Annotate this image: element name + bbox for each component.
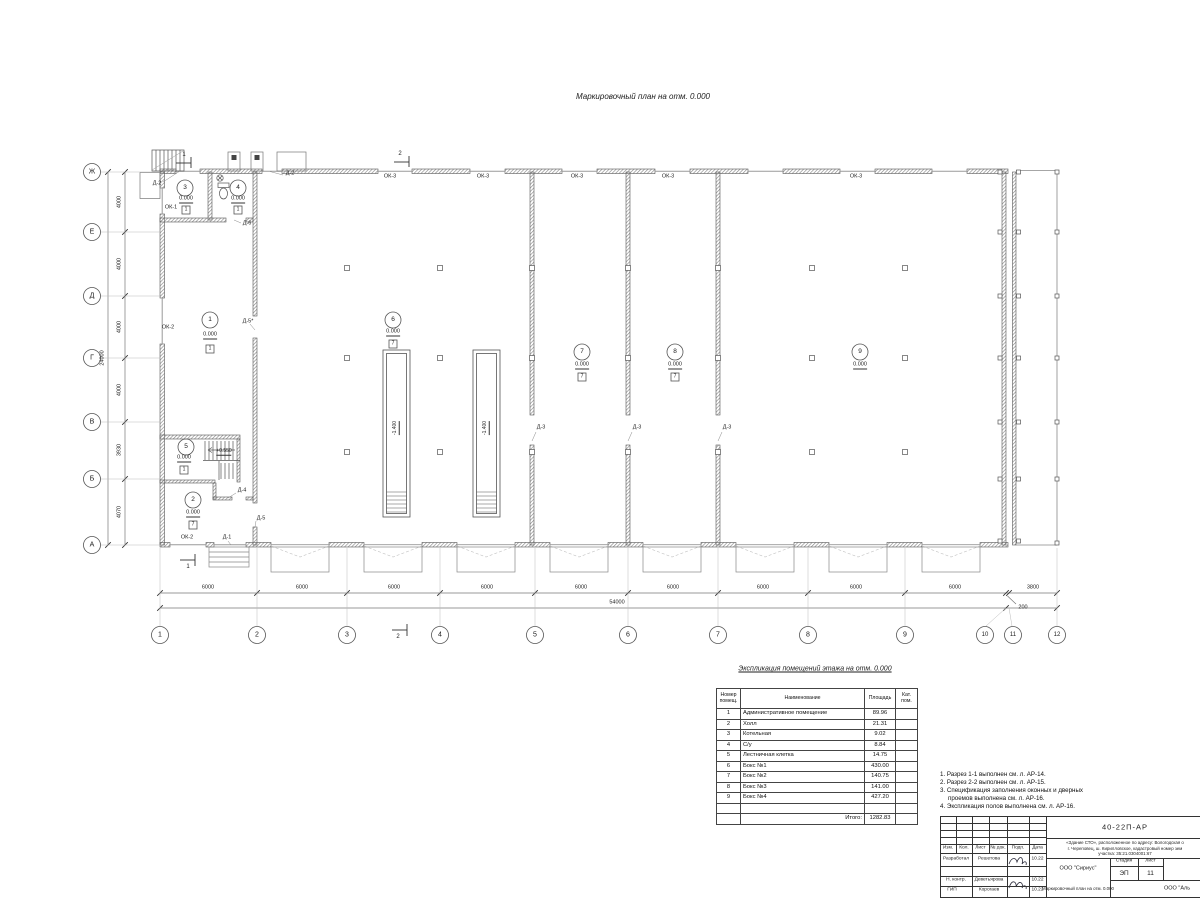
floor-type: 1 [185,208,188,213]
axis-col-label: 9 [903,632,907,639]
tb-org2: ООО "Аль [1164,886,1190,892]
door-label-d6: Д-6 [243,221,252,227]
section-marks [176,156,409,636]
door-label-d5: Д-5 [257,516,266,522]
drawing-sheet: Маркировочный план на отм. 0.000 Ж Е Д Г… [0,0,1200,900]
cell-area: 140.75 [865,772,896,783]
note-line: проемов выполнена см. л. АР-16. [940,795,1180,803]
dim-v: 4000 [117,384,123,396]
gates [209,545,980,572]
room-number: 7 [580,349,584,356]
axis-col-label: 2 [255,632,259,639]
window-label-ok3: ОК-3 [384,174,396,180]
cell-num: 8 [717,782,741,793]
cell-area: 427.20 [865,793,896,804]
door-label-d2: Д-2 [153,181,162,187]
dim-bay: 6000 [850,585,862,591]
section-mark-label: 1 [186,564,189,570]
floor-type: 1 [209,347,212,352]
table-row: 8Бокс №3141.00 [717,782,918,793]
note-line: 1. Разрез 1-1 выполнен см. л. АР-14. [940,771,1180,779]
tb-sheet-label: Лист [1145,860,1155,865]
floor-type: 1 [183,468,186,473]
table-row-total: Итого:1282.83 [717,814,918,825]
tb-col-izm: Изм. [943,846,953,851]
cell-empty [896,803,918,814]
room-table: Номер помещ. Наименование Площадь Кат. п… [716,688,918,825]
cell-num: 2 [717,719,741,730]
canopy [1016,171,1057,546]
tb-date: 10.22 [1031,879,1043,884]
cell-area: 430.00 [865,761,896,772]
axis-col-label: 12 [1054,632,1061,638]
tb-name: Решетова [978,858,1000,863]
cell-num: 6 [717,761,741,772]
axis-row-label: Д [90,293,95,300]
dim-bay: 6000 [575,585,587,591]
dim-bay: 6000 [667,585,679,591]
room-elevation: 0.000 [853,363,867,370]
axis-row-label: В [90,419,95,426]
porches [140,152,306,199]
section-mark-label: 2 [398,151,401,157]
cell-name: Бокс №1 [741,761,865,772]
cell-name: Бокс №4 [741,793,865,804]
col-header-cat: Кат. пом. [896,689,918,709]
opening-lines [162,171,967,544]
tb-stage-value: ЭП [1119,870,1128,877]
window-label-ok1: ОК-1 [165,205,177,211]
cell-num: 5 [717,751,741,762]
dim-total-v: 24000 [100,350,106,365]
tb-col-ndok: № док. [990,846,1005,851]
cell-empty [741,803,865,814]
window-label-ok2: ОК-2 [181,535,193,541]
total-value: 1282.83 [865,814,896,825]
floor-type: 1 [237,208,240,213]
axis-col-label: 1 [158,632,162,639]
room-number: 2 [191,497,195,504]
axis-col-label: 7 [716,632,720,639]
axis-leaders [101,172,1058,626]
window-label-ok3: ОК-3 [662,174,674,180]
axis-col-label: 4 [438,632,442,639]
pit-elevation: -1.400 [483,421,490,435]
dim-bay: 6000 [949,585,961,591]
cell-cat [896,719,918,730]
tb-col-kol: Кол. [959,846,969,851]
tb-date: 10.22 [1031,858,1043,863]
room-number: 3 [183,185,187,192]
tb-org: ООО "Сириус" [1060,866,1097,872]
cell-cat [896,730,918,741]
table-row: 9Бокс №4427.20 [717,793,918,804]
signatures [1009,858,1026,889]
cell-name: С/у [741,740,865,751]
axis-bubbles [84,164,1066,644]
cell-name: Лестничная клетка [741,751,865,762]
tb-col-data: Дата [1032,846,1043,851]
axis-col-label: 5 [533,632,537,639]
cell-empty [717,814,741,825]
plan-title: Маркировочный план на отм. 0.000 [576,93,710,101]
columns [345,170,1060,545]
room-elevation: 0.000 [177,456,191,463]
axis-col-label: 10 [982,632,989,638]
axis-col-label: 3 [345,632,349,639]
cell-area: 21.31 [865,719,896,730]
dim-bay: 6000 [757,585,769,591]
dim-bay: 6000 [388,585,400,591]
room-number: 4 [236,185,240,192]
tb-doc-number: 40-22П-АР [1102,823,1148,831]
cell-name: Административное помещение [741,709,865,720]
room-number: 9 [858,349,862,356]
cell-area: 89.96 [865,709,896,720]
dim-v: 4000 [117,321,123,333]
note-line: 3. Спецификация заполнения оконных и две… [940,787,1180,795]
tb-stage-label: Стадия [1116,860,1132,865]
tb-name: Деветьярова [975,879,1004,884]
axis-col-label: 6 [626,632,630,639]
table-row: 3Котельная9.02 [717,730,918,741]
cell-name: Бокс №3 [741,782,865,793]
door-label-d4: Д-4 [238,488,247,494]
cell-num: 1 [717,709,741,720]
dim-total-h: 54000 [609,600,624,606]
notes-block: 1. Разрез 1-1 выполнен см. л. АР-14. 2. … [940,771,1180,811]
stair-elevation: +0.550 [216,449,231,456]
window-label-ok3: ОК-3 [477,174,489,180]
cell-cat [896,740,918,751]
cell-name: Бокс №2 [741,772,865,783]
cell-cat [896,761,918,772]
cell-cat [896,782,918,793]
table-row-empty [717,803,918,814]
cell-cat [896,772,918,783]
cell-cat [896,793,918,804]
cell-num: 3 [717,730,741,741]
col-header-area: Площадь [865,689,896,709]
room-elevation: 0.000 [203,333,217,340]
door-label-d3: Д-3 [537,425,546,431]
window-label-ok2: ОК-2 [162,325,174,331]
room-elevation: 0.000 [575,363,589,370]
door-label-d3: Д-3 [723,425,732,431]
col-header-num: Номер помещ. [717,689,741,709]
cell-area: 141.00 [865,782,896,793]
tb-project-line: участка: 35:21.0304001:67 [1098,852,1151,856]
cell-num: 9 [717,793,741,804]
axis-row-label: А [90,542,95,549]
dim-v: 4000 [117,258,123,270]
axis-col-label: 8 [806,632,810,639]
dim-right-bay: 3800 [1027,585,1039,591]
cell-num: 4 [717,740,741,751]
tb-role: Н. контр. [946,879,966,884]
room-bubbles [177,180,868,529]
floor-type: 7 [192,523,195,528]
floor-type: 7 [581,375,584,380]
floor-type: 7 [392,342,395,347]
door-label-d5s: Д-5* [243,319,254,325]
door-label-d3: Д-3 [633,425,642,431]
dim-bay: 6000 [481,585,493,591]
cell-empty [717,803,741,814]
axis-row-label: Г [90,355,94,362]
tb-col-list: Лист [975,846,985,851]
tb-sheet-value: 11 [1147,870,1154,877]
dim-v: 3930 [117,444,123,456]
dim-bay: 6000 [202,585,214,591]
window-label-ok3: ОК-3 [571,174,583,180]
door-label-d1: Д-1 [223,535,232,541]
total-label: Итого: [741,814,865,825]
axis-col-label: 11 [1010,632,1016,638]
room-number: 6 [391,317,395,324]
room-elevation: 0.000 [668,363,682,370]
cell-name: Холл [741,719,865,730]
pit-elevation: -1.400 [393,421,400,435]
table-row: 1Административное помещение89.96 [717,709,918,720]
tb-name: Корогаев [979,889,999,894]
dim-bay: 6000 [296,585,308,591]
cell-num: 7 [717,772,741,783]
tb-sheet-title: Маркировочный план на отм. 0.000 [1042,886,1114,890]
room-number: 5 [184,444,188,451]
room-number: 1 [208,317,212,324]
stairs [152,150,240,480]
tb-role: Разработал [943,858,969,863]
axis-row-label: Ж [89,169,95,176]
section-mark-label: 1 [182,152,185,158]
room-elevation: 0.000 [386,330,400,337]
cell-area: 8.84 [865,740,896,751]
col-header-name: Наименование [741,689,865,709]
room-table-title: Экспликация помещений этажа на отм. 0.00… [738,666,891,673]
table-row: 4С/у8.84 [717,740,918,751]
room-number: 8 [673,349,677,356]
cell-empty [896,814,918,825]
dim-v: 4000 [117,196,123,208]
cell-name: Котельная [741,730,865,741]
walls-hatched [160,169,1016,547]
dim-gap: 200 [1018,605,1027,611]
table-row: 6Бокс №1430.00 [717,761,918,772]
cell-empty [865,803,896,814]
toilet-fixtures [217,175,229,199]
tb-col-podp: Подп. [1012,846,1025,851]
note-line: 4. Экспликация полов выполнена см. л. АР… [940,803,1180,811]
room-elevation: 0.000 [231,197,245,204]
axis-row-label: Б [90,476,95,483]
axis-row-label: Е [90,229,95,236]
table-row: 7Бокс №2140.75 [717,772,918,783]
table-row: 2Холл21.31 [717,719,918,730]
floor-type: 7 [674,375,677,380]
window-label-ok3: ОК-3 [850,174,862,180]
section-mark-label: 2 [396,634,399,640]
tb-role: ГИП [947,889,957,894]
cell-cat [896,751,918,762]
dim-v: 4070 [117,506,123,518]
door-label-d2: Д-2 [286,171,295,177]
cell-cat [896,709,918,720]
note-line: 2. Разрез 2-2 выполнен см. л. АР-15. [940,779,1180,787]
cell-area: 14.75 [865,751,896,762]
plan-linework [0,0,1200,900]
room-elevation: 0.000 [179,197,193,204]
cell-area: 9.02 [865,730,896,741]
table-row: 5Лестничная клетка14.75 [717,751,918,762]
room-elevation: 0.000 [186,511,200,518]
